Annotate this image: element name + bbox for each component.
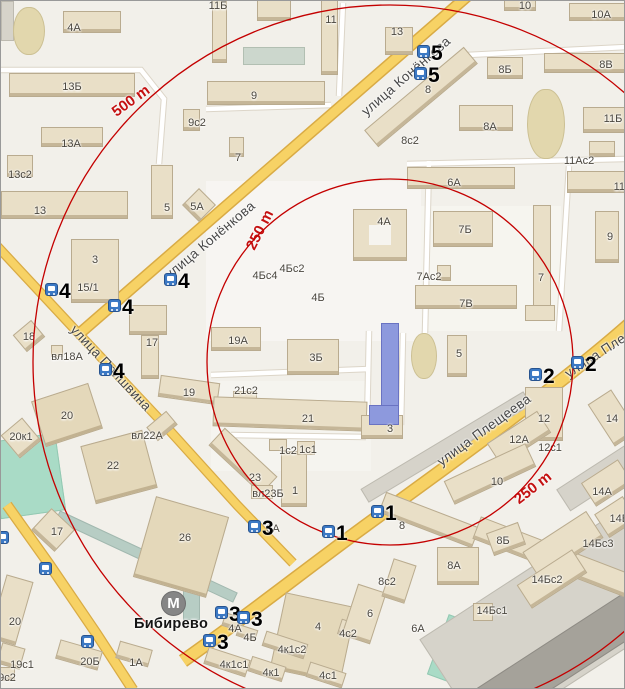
bus-icon [529, 368, 542, 381]
bus-stop-marker-5[interactable]: 5 [417, 45, 443, 62]
markers-layer: 55444422113333 [1, 1, 625, 689]
bus-icon [99, 363, 112, 376]
bus-stop-marker-4[interactable]: 4 [45, 283, 71, 300]
bus-stop-marker-3[interactable]: 3 [203, 634, 229, 651]
bus-icon [414, 67, 427, 80]
bus-stop-marker-3[interactable]: 3 [237, 611, 263, 628]
bus-stop-marker-2[interactable]: 2 [529, 368, 555, 385]
bus-stop-number: 4 [113, 363, 125, 380]
bus-stop-number: 4 [122, 299, 134, 316]
bus-icon [108, 299, 121, 312]
bus-stop-marker-5[interactable]: 5 [414, 67, 440, 84]
bus-stop-marker-1[interactable]: 1 [322, 525, 348, 542]
bus-icon [81, 635, 94, 648]
bus-icon [417, 45, 430, 58]
bus-stop-marker[interactable] [81, 635, 94, 648]
bus-stop-number: 5 [431, 45, 443, 62]
bus-stop-number: 3 [262, 520, 274, 537]
bus-icon [39, 562, 52, 575]
bus-stop-number: 4 [178, 273, 190, 290]
bus-stop-number: 1 [385, 505, 397, 522]
bus-stop-marker-4[interactable]: 4 [164, 273, 190, 290]
bus-stop-number: 1 [336, 525, 348, 542]
bus-icon [322, 525, 335, 538]
bus-icon [45, 283, 58, 296]
bus-stop-marker-4[interactable]: 4 [108, 299, 134, 316]
bus-stop-number: 2 [543, 368, 555, 385]
bus-stop-number: 4 [59, 283, 71, 300]
bus-stop-marker-2[interactable]: 2 [571, 356, 597, 373]
bus-stop-marker-3[interactable]: 3 [248, 520, 274, 537]
bus-icon [203, 634, 216, 647]
bus-icon [571, 356, 584, 369]
bus-icon [0, 531, 9, 544]
bus-stop-number: 3 [251, 611, 263, 628]
bus-icon [237, 611, 250, 624]
bus-stop-number: 2 [585, 356, 597, 373]
bus-stop-number: 5 [428, 67, 440, 84]
bus-stop-marker[interactable] [39, 562, 52, 575]
bus-icon [215, 606, 228, 619]
bus-stop-marker-1[interactable]: 1 [371, 505, 397, 522]
bus-icon [371, 505, 384, 518]
bus-stop-marker-4[interactable]: 4 [99, 363, 125, 380]
bus-icon [164, 273, 177, 286]
bus-stop-marker[interactable] [0, 531, 9, 544]
bus-stop-number: 3 [217, 634, 229, 651]
map-canvas[interactable]: 4А11Б11131010А13Б98Б8В89с28А11Б13А8с2713… [0, 0, 625, 689]
bus-icon [248, 520, 261, 533]
